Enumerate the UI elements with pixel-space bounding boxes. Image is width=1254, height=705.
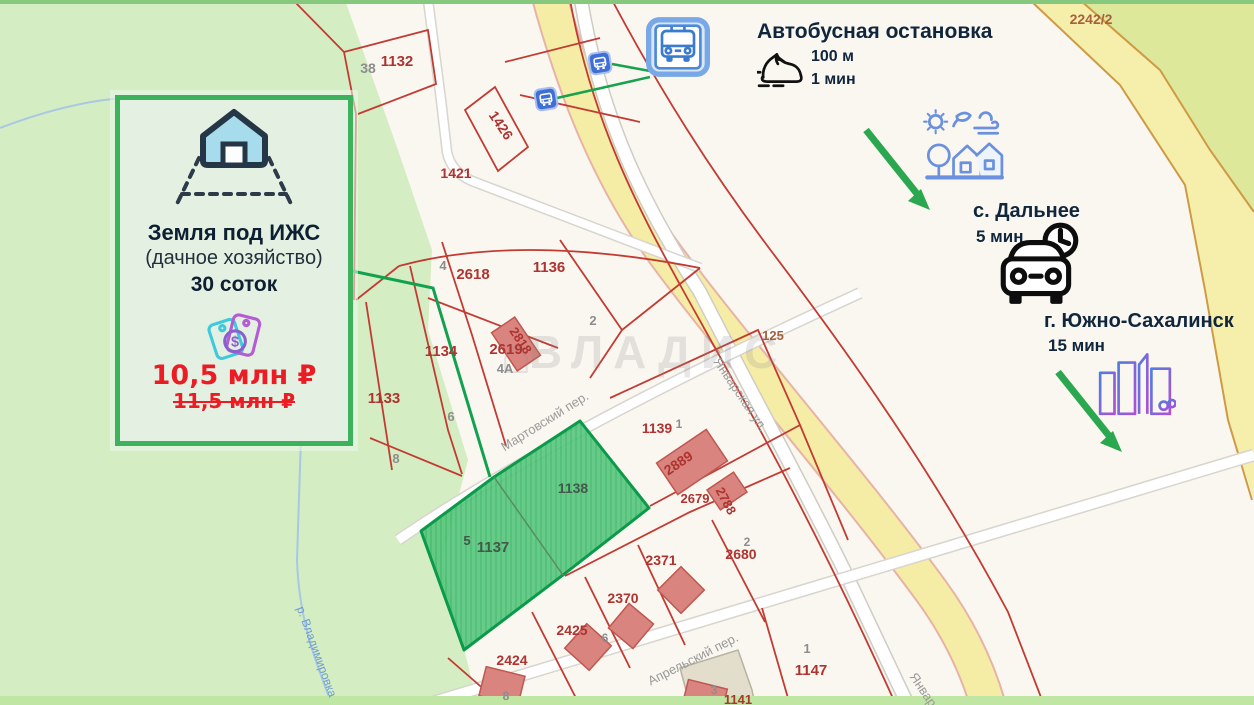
parcel-label-1421: 1421	[440, 165, 471, 181]
bus-stop-icon	[646, 17, 710, 77]
listing-info-card: Земля под ИЖС (дачное хозяйство) 30 сото…	[115, 95, 353, 446]
parcel-label-1134: 1134	[425, 343, 458, 360]
parcel-label-5: 5	[463, 533, 470, 548]
listing-map-image: Мартовский пер.Январская ул.Январская ул…	[0, 0, 1254, 705]
house-plot-icon	[159, 104, 309, 216]
parcel-label-1133: 1133	[368, 390, 401, 407]
price-old: 11,5 млн ₽	[173, 390, 295, 412]
parcel-label-3: 3	[711, 683, 718, 697]
parcel-label-1b: 1	[803, 641, 810, 656]
card-title: Земля под ИЖС	[148, 220, 320, 246]
parcel-label-2370: 2370	[607, 590, 638, 606]
map-edge-bottom	[0, 696, 1254, 705]
parcel-label-2680: 2680	[725, 546, 756, 562]
parcel-label-1141: 1141	[724, 692, 752, 705]
parcel-label-1: 1	[676, 417, 683, 431]
parcel-label-2618: 2618	[456, 266, 489, 283]
card-subtitle: (дачное хозяйство)	[145, 247, 322, 270]
destination-yuzhno-sakhalinsk-name: г. Южно-Сахалинск	[1044, 310, 1234, 333]
svg-text:$: $	[231, 334, 239, 350]
parcel-label-2679: 2679	[681, 491, 710, 506]
parcel-label-2424: 2424	[496, 652, 527, 668]
parcel-label-4a: 4А	[497, 361, 514, 376]
map-edge-top	[0, 0, 1254, 4]
parcel-label-1138: 1138	[558, 480, 589, 496]
parcel-label-2425: 2425	[556, 622, 587, 638]
bus-stop-title: Автобусная остановка	[757, 20, 992, 44]
parcel-label-1137: 1137	[477, 539, 510, 556]
road-label-125: 125	[762, 328, 784, 343]
watermark-text: ВЛАДИС	[529, 326, 787, 378]
car-drive-time-icon	[995, 218, 1083, 312]
parcel-label-6: 6	[447, 409, 454, 424]
parcel-label-6b: 6	[602, 631, 609, 645]
parcel-label-1147: 1147	[795, 662, 828, 679]
parcel-label-38: 38	[360, 60, 376, 76]
price-tags-icon: $	[201, 304, 267, 362]
parcel-label-8: 8	[392, 451, 399, 466]
parcel-label-2: 2	[589, 313, 596, 328]
card-area: 30 соток	[191, 273, 278, 297]
parcel-label-1136: 1136	[533, 259, 566, 276]
parcel-label-2242-2: 2242/2	[1070, 11, 1113, 27]
price-current: 10,5 млн ₽	[152, 362, 317, 390]
parcel-label-8b: 8	[503, 689, 510, 703]
arrow-to-city-icon	[1046, 360, 1130, 464]
parcel-label-1139: 1139	[642, 420, 673, 436]
bus-stop-marker-icon	[534, 87, 558, 111]
bus-stop-distance: 100 м	[811, 48, 854, 66]
walking-shoe-icon	[757, 46, 805, 88]
bus-stop-walk-time: 1 мин	[811, 71, 856, 89]
arrow-to-parcel-icon	[856, 120, 940, 224]
parcel-label-2371: 2371	[645, 552, 676, 568]
parcel-label-4: 4	[439, 258, 447, 273]
bus-stop-marker-icon	[588, 51, 612, 75]
parcel-label-1132: 1132	[381, 53, 414, 70]
